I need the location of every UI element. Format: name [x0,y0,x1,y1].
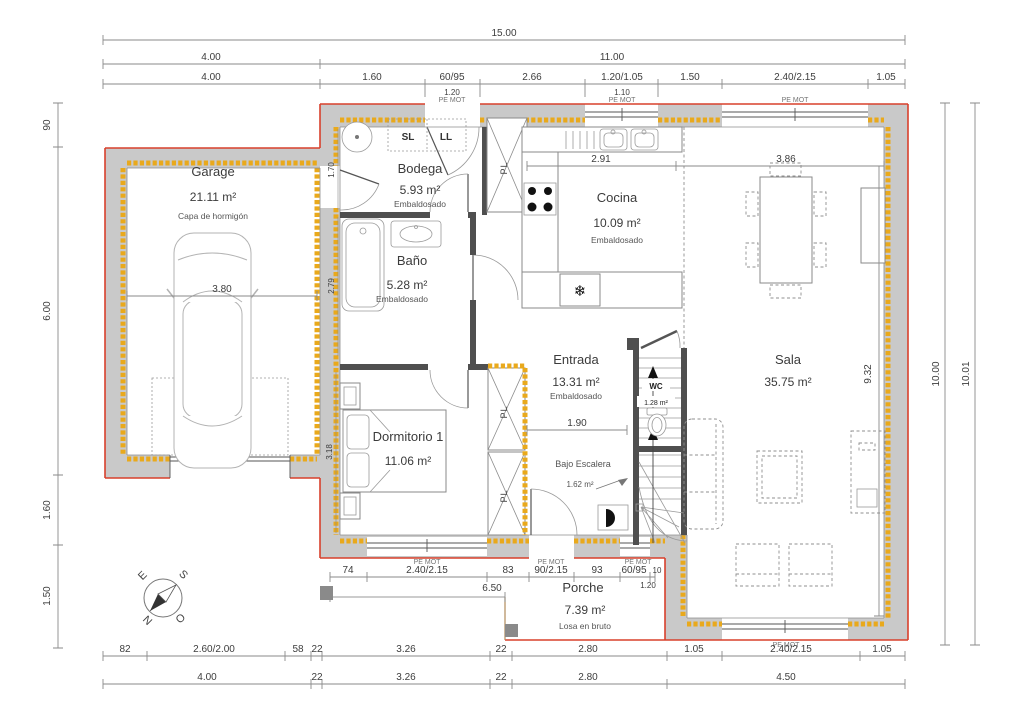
dim: 2.60/2.00 [193,644,235,655]
dim: 10.01 [961,361,972,386]
porch [320,586,518,640]
floor-plan-drawing: PL PL PL ❄ SL [0,0,1023,709]
dim: 1.70 [327,162,336,178]
dim: 1.20/1.05 [601,72,643,83]
room-area: 7.39 m² [565,603,606,617]
closet-label: PL [499,161,509,174]
dim: 1.05 [872,644,892,655]
dim: 2.66 [522,72,542,83]
dim: 3.80 [212,284,232,295]
room-floor: Embaldosado [394,199,446,209]
dim: 1.60 [42,500,53,520]
dimensions-top: 15.00 4.00 11.00 4.00 1.60 60/95 2.66 1.… [103,28,905,104]
dim: 1.50 [42,586,53,606]
room-area: 11.06 m² [385,454,431,468]
toilet [647,408,667,436]
dim: 22 [311,672,323,683]
room-name: Dormitorio 1 [373,429,444,444]
dim: 2.40/2.15 [770,644,812,655]
dim: 3.26 [396,644,416,655]
dim: 1.05 [876,72,896,83]
room-area: 13.31 m² [552,375,599,389]
room-area: 21.11 m² [190,190,236,204]
room-floor: Embaldosado [550,391,602,401]
room-name: Entrada [553,352,599,367]
room-label-garage: Garage 21.11 m² Capa de hormigón [178,164,248,221]
dim: 22 [495,672,507,683]
dim: 1.60 [362,72,382,83]
dim: 74 [342,565,354,576]
fridge: ❄ [560,274,600,306]
washer-label: SL [402,132,415,143]
dim: 60/95 [439,72,464,83]
room-floor: Embaldosado [376,294,428,304]
dim: 3.86 [776,154,796,165]
sideboard [861,188,885,263]
dim: 2.91 [591,154,611,165]
compass-rose: E S N O [136,568,190,628]
dim: 1.50 [680,72,700,83]
dim: 58 [292,644,304,655]
dining-table [746,163,826,298]
dim: 2.40/2.15 [774,72,816,83]
wc-area: WC 1.28 m² [637,379,675,436]
dim: 90 [42,119,53,131]
room-area: 5.28 m² [387,278,428,292]
room-area: 5.93 m² [400,183,441,197]
room-name: Bodega [398,161,444,176]
window-type-label: PE MOT [782,97,810,104]
dimensions-bottom: PE MOT 82 2.60/2.00 58 22 3.26 22 2.80 1… [103,642,905,689]
compass-e: E [136,569,150,583]
room-floor: Embaldosado [591,235,643,245]
window-type-label: PE MOT [609,97,637,104]
dim: 82 [119,644,131,655]
room-label-porche: Porche 7.39 m² Losa en bruto [559,580,611,631]
porch-footing [505,624,518,637]
dim: 1.05 [684,644,704,655]
dim: 11.00 [600,52,625,63]
dim: 9.32 [863,364,874,384]
dimensions-left: 90 6.00 1.60 1.50 [42,103,63,648]
dim: 3.18 [325,444,334,460]
room-name: Sala [775,352,802,367]
room-name: Porche [562,580,603,595]
room-name: Garage [191,164,234,179]
room-label-bodega: Bodega 5.93 m² Embaldosado [394,161,446,209]
water-heater [342,122,372,152]
room-label-sala: Sala 35.75 m² [764,352,811,389]
porch-footing [320,586,333,600]
room-label-entrada: Entrada 13.31 m² Embaldosado [550,352,602,401]
dim: 4.50 [776,672,796,683]
compass-s: S [176,568,190,582]
closet-top: PL [487,118,527,212]
dim: 6.00 [42,301,53,321]
fridge-icon: ❄ [574,283,587,300]
armchairs [736,544,832,586]
closet-label: PL [499,489,509,502]
dim: 6.50 [482,583,502,594]
dim: 22 [311,644,323,655]
coffee-table [757,451,802,503]
room-area: 10.09 m² [593,216,640,230]
dim: 2.79 [327,278,336,294]
car [167,233,258,468]
closet-entrada-1: PL [488,368,525,450]
room-area: 1.62 m² [566,480,593,489]
dim: 4.00 [201,72,221,83]
room-floor: Capa de hormigón [178,211,248,221]
dimensions-right: 10.00 10.01 [931,103,980,645]
dim: 3.26 [396,672,416,683]
dim: 2.80 [578,644,598,655]
dim-sub: 1.20 [640,581,656,590]
sofa [684,419,723,529]
dryer-label: LL [440,132,452,143]
dim: 93 [591,565,603,576]
radiator-marker [598,505,628,530]
dim: 4.00 [201,52,221,63]
dim: 10 [653,566,662,575]
stove [524,183,556,215]
room-label-bajo-escalera: Bajo Escalera 1.62 m² [555,459,628,489]
dim: 10.00 [931,361,942,386]
dim: 60/95 [621,565,646,576]
room-name: Baño [397,253,427,268]
floor-plan-canvas: PL PL PL ❄ SL [0,0,1023,709]
dim: 2.80 [578,672,598,683]
dim: 90/2.15 [534,565,568,576]
compass-o: O [174,611,189,626]
dim: 22 [495,644,507,655]
room-name: Cocina [597,190,638,205]
room-area-wc: 1.28 m² [644,400,668,407]
room-name: Bajo Escalera [555,459,611,469]
closet-label: PL [499,405,509,418]
dim-total-width: 15.00 [491,28,516,39]
compass-n: N [140,614,154,628]
dim: 83 [502,565,514,576]
bed [343,410,446,492]
room-name-wc: WC [649,382,663,391]
tv-unit [851,431,885,513]
leader-arrow [618,478,628,486]
window-type-label: PE MOT [439,97,467,104]
room-label-cocina: Cocina 10.09 m² Embaldosado [591,190,643,245]
dim: 4.00 [197,672,217,683]
dim: 1.90 [567,418,587,429]
room-floor: Losa en bruto [559,621,611,631]
dim-sub: 1.20 [444,88,460,97]
dim: 2.40/2.15 [406,565,448,576]
room-area: 35.75 m² [764,375,811,389]
bathroom-sink [391,221,441,247]
dim-sub: 1.10 [614,88,630,97]
